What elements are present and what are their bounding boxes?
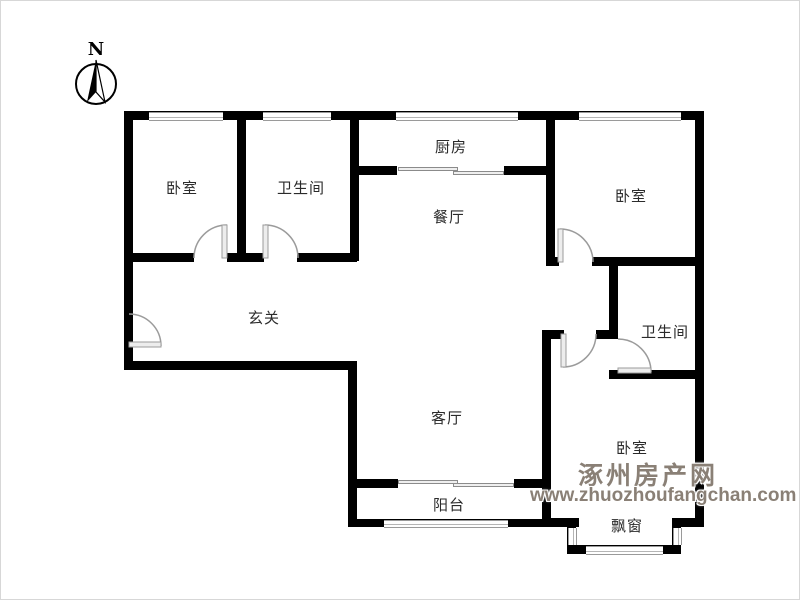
room-label-dining: 餐厅 <box>433 206 465 227</box>
room-label-living: 客厅 <box>431 407 463 428</box>
room-label-bedroom-top-right: 卧室 <box>615 185 647 206</box>
room-label-entry-hall: 玄关 <box>248 307 280 328</box>
room-label-kitchen: 厨房 <box>435 136 467 157</box>
door-bedroom3 <box>561 334 596 367</box>
room-label-bedroom-bottom-right: 卧室 <box>616 437 648 458</box>
room-label-bathroom-right: 卫生间 <box>641 321 689 342</box>
door-bedroom1 <box>194 225 227 258</box>
door-bathroom2 <box>618 339 651 373</box>
room-label-bedroom-top-left: 卧室 <box>166 177 198 198</box>
svg-text:N: N <box>88 39 104 60</box>
door-bathroom1 <box>263 225 298 258</box>
door-main-entrance <box>129 314 161 347</box>
floor-plan: N <box>0 0 800 600</box>
north-compass-icon: N <box>76 39 116 104</box>
room-label-bay-window: 飘窗 <box>611 515 643 536</box>
door-bedroom2 <box>558 229 593 262</box>
doors-and-compass-layer: N <box>1 1 800 600</box>
room-label-bathroom-top: 卫生间 <box>277 177 325 198</box>
watermark-site-url: www.zhuozhoufangchan.com <box>530 485 796 507</box>
room-label-balcony: 阳台 <box>433 494 465 515</box>
